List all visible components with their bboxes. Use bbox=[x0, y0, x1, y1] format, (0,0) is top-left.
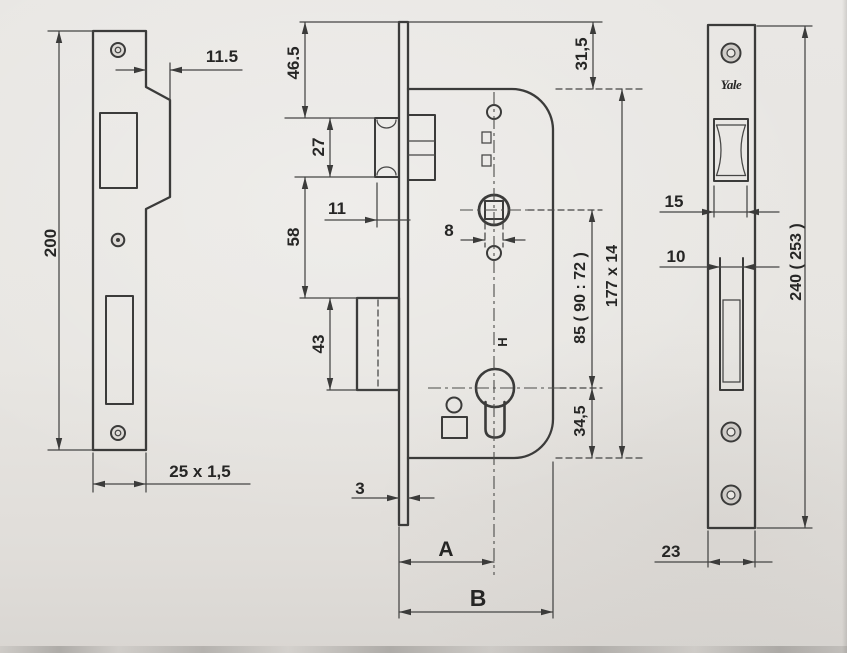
dim-label: 200 bbox=[41, 229, 60, 257]
brand-logo: Yale bbox=[721, 77, 742, 92]
dim-plate-width: 23 bbox=[655, 531, 772, 567]
dim-label: 46.5 bbox=[284, 46, 303, 79]
strike-plate-outline bbox=[93, 31, 170, 450]
case-square-hole bbox=[442, 417, 467, 438]
strike-screw-hole-top bbox=[111, 43, 125, 57]
lock-dimension-diagram: 200 11.5 25 x 1,5 bbox=[0, 0, 847, 653]
dim-strike-profile: 25 x 1,5 bbox=[93, 453, 250, 492]
scan-edge-bottom bbox=[0, 646, 847, 653]
dim-label: 23 bbox=[662, 542, 681, 561]
dim-faceplate-thickness: 3 bbox=[352, 479, 434, 501]
dim-label: 58 bbox=[284, 228, 303, 247]
euro-cylinder-hole bbox=[476, 369, 514, 438]
dim-label: 177 x 14 bbox=[604, 245, 621, 307]
face-plate-outline bbox=[708, 25, 755, 528]
dim-label: 27 bbox=[309, 138, 328, 157]
dim-label: 15 bbox=[665, 192, 684, 211]
dim-label: 34,5 bbox=[572, 405, 589, 436]
dim-label: A bbox=[438, 538, 453, 561]
dim-cylinder-to-bottom: 34,5 bbox=[572, 388, 595, 458]
dim-label: 25 x 1,5 bbox=[169, 462, 230, 481]
scan-edge-right bbox=[842, 0, 847, 653]
case-stamp: H bbox=[495, 337, 510, 346]
lock-case-view: H 46.5 27 58 bbox=[284, 22, 642, 618]
dim-top-to-latch: 46.5 bbox=[284, 22, 399, 118]
dim-label: 8 bbox=[444, 221, 453, 240]
dim-label: 3 bbox=[355, 479, 364, 498]
strike-latch-cutout bbox=[100, 113, 137, 188]
forend-edge bbox=[399, 22, 408, 525]
dim-label: B bbox=[470, 585, 487, 611]
strike-screw-hole-bottom bbox=[111, 426, 125, 440]
case-hole-left bbox=[447, 398, 462, 413]
dim-top-margin: 31,5 bbox=[408, 22, 642, 89]
dim-centre-distance: 85 ( 90 : 72 ) bbox=[528, 210, 602, 388]
face-screw-hole-mid bbox=[722, 423, 741, 442]
dim-label: 240 ( 253 ) bbox=[788, 223, 805, 300]
face-screw-hole-top bbox=[722, 44, 741, 63]
deadbolt-front bbox=[720, 258, 743, 390]
deadbolt-side bbox=[357, 298, 399, 390]
dim-case-size: 177 x 14 bbox=[556, 89, 642, 458]
case-slot-2 bbox=[482, 155, 491, 166]
case-slot-1 bbox=[482, 132, 491, 143]
face-screw-hole-bottom bbox=[722, 486, 741, 505]
dim-latch-width: 15 bbox=[660, 186, 779, 217]
dim-deadbolt-height: 43 bbox=[300, 298, 399, 390]
dim-latch-to-deadbolt: 58 bbox=[284, 177, 308, 298]
dim-plate-length: 240 ( 253 ) bbox=[757, 26, 812, 528]
dim-label: 31,5 bbox=[572, 37, 591, 70]
scanned-technical-drawing: 200 11.5 25 x 1,5 bbox=[0, 0, 847, 653]
dim-spindle-square: 8 bbox=[444, 221, 525, 247]
dim-label: 85 ( 90 : 72 ) bbox=[572, 252, 589, 344]
dim-depth-B: B bbox=[399, 462, 553, 618]
dim-strike-lip-offset: 11.5 bbox=[116, 47, 242, 100]
strike-deadbolt-cutout bbox=[106, 296, 133, 404]
dim-latch-projection: 11 bbox=[325, 183, 410, 227]
latch-bolt-side bbox=[375, 115, 435, 180]
dim-label: 43 bbox=[309, 335, 328, 354]
dim-latch-height: 27 bbox=[295, 118, 375, 177]
dim-label: 10 bbox=[667, 247, 686, 266]
strike-middle-hole bbox=[112, 234, 125, 247]
latch-bolt-front bbox=[714, 119, 748, 181]
strike-plate-view: 200 11.5 25 x 1,5 bbox=[41, 31, 250, 492]
dim-label: 11 bbox=[328, 199, 346, 218]
face-plate-view: Yale 15 10 bbox=[655, 25, 812, 567]
lock-case-outline bbox=[408, 89, 553, 458]
dim-strike-height: 200 bbox=[41, 31, 93, 450]
dim-label: 11.5 bbox=[206, 47, 238, 66]
